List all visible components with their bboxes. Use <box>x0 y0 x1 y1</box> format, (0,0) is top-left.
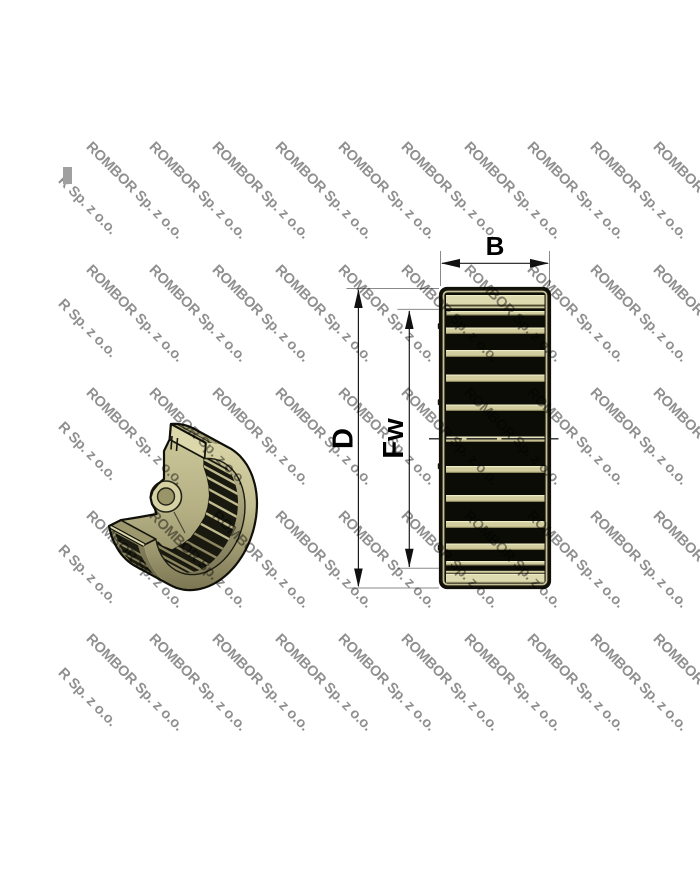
svg-text:Fw: Fw <box>378 418 410 459</box>
svg-text:D: D <box>328 428 360 449</box>
svg-text:B: B <box>486 231 505 261</box>
